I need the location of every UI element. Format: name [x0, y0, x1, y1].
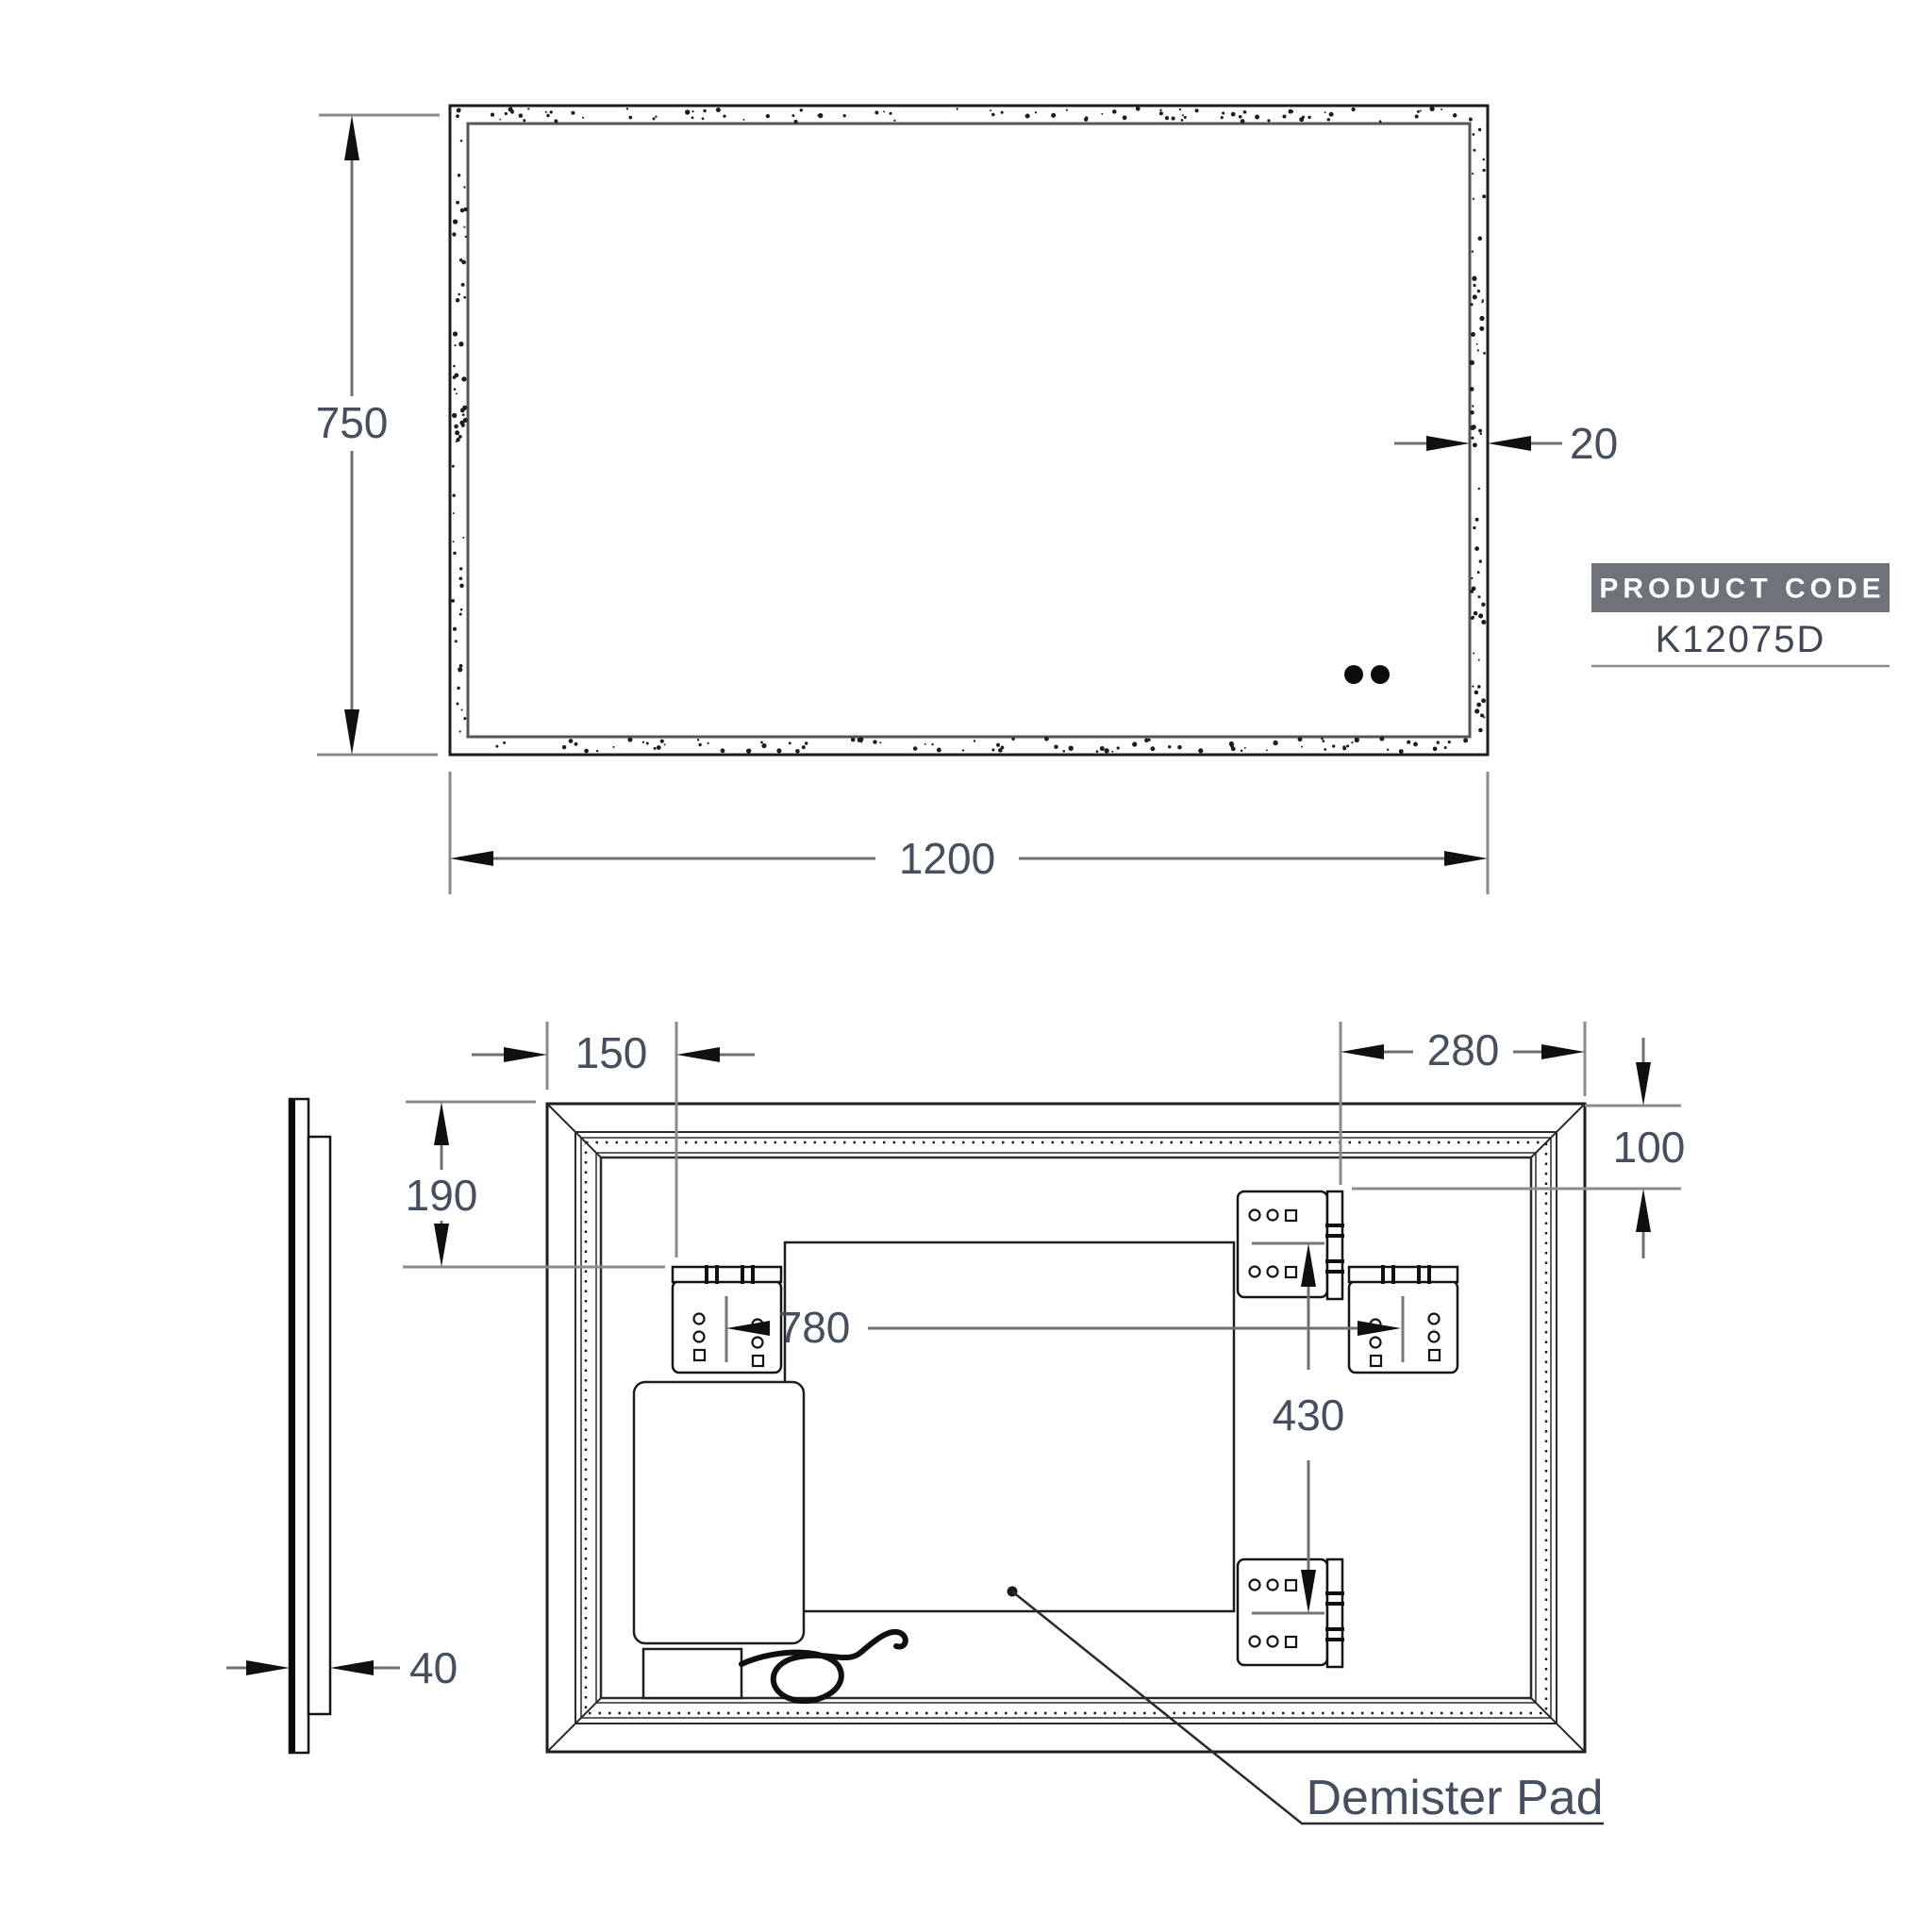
rear-view: 40	[226, 1022, 1685, 1825]
demister-pad	[785, 1242, 1234, 1611]
product-code-badge-label: PRODUCT CODE	[1599, 574, 1885, 605]
dimension-height: 750	[316, 115, 440, 755]
dimension-frame-thickness: 20	[1394, 419, 1618, 468]
bracket-horizontal-span-label: 780	[778, 1303, 851, 1352]
demister-pad-label: Demister Pad	[1307, 1771, 1604, 1825]
bracket-top-offset-label: 100	[1613, 1123, 1686, 1172]
dimension-bracket-left-offset: 150	[472, 1022, 755, 1257]
led-stipple	[451, 107, 1486, 754]
bracket-vertical-span-label: 430	[1273, 1391, 1345, 1440]
sensor-dots	[1344, 665, 1390, 684]
wall-bracket-left	[673, 1265, 781, 1373]
led-driver-box	[634, 1382, 804, 1643]
dimension-depth: 40	[226, 1643, 458, 1692]
dimension-bracket-top-clearance: 190	[403, 1102, 665, 1267]
side-profile-backbox	[308, 1137, 330, 1714]
side-profile	[290, 1099, 330, 1753]
bracket-right-offset-label: 280	[1427, 1025, 1500, 1074]
width-dimension-label: 1200	[899, 834, 995, 883]
bracket-left-offset-label: 150	[575, 1028, 648, 1077]
front-view: 750 1200 20	[316, 106, 1619, 894]
dimension-bracket-top-offset: 100	[1352, 1038, 1685, 1258]
wall-bracket-top-right	[1238, 1191, 1344, 1299]
mirror-outer-frame	[450, 106, 1488, 755]
technical-drawing-page: 750 1200 20 PRODUCT CODE K12075D	[0, 0, 1932, 1932]
wall-bracket-bottom-right	[1238, 1559, 1344, 1667]
product-code-value: K12075D	[1656, 619, 1826, 660]
bracket-top-clearance-label: 190	[406, 1171, 478, 1220]
height-dimension-label: 750	[316, 398, 389, 447]
junction-box	[643, 1649, 741, 1698]
product-code-panel: PRODUCT CODE K12075D	[1591, 563, 1890, 666]
dimension-width: 1200	[450, 772, 1488, 894]
mirror-inner-frame	[468, 124, 1470, 737]
wall-bracket-right	[1349, 1265, 1457, 1373]
depth-dimension-label: 40	[409, 1643, 458, 1692]
frame-thickness-label: 20	[1570, 419, 1618, 468]
